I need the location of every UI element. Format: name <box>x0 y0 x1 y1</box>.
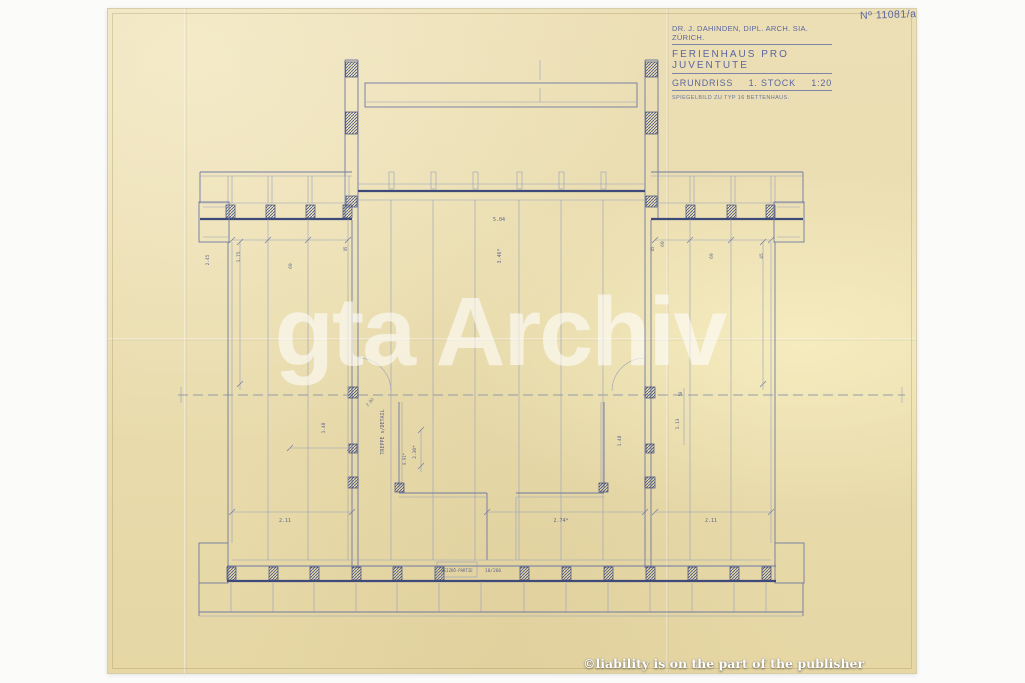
dim-label: 1.48 <box>617 435 623 446</box>
project-title: FERIENHAUS PRO JUVENTUTE <box>672 49 832 74</box>
dimension-lines <box>229 237 774 515</box>
dim-label: 2.74* <box>553 518 568 524</box>
dim-label: TREPPE s/DETAIL <box>380 409 386 454</box>
dim-label: 85 <box>650 246 655 251</box>
dim-label: 58 <box>678 391 683 396</box>
floor-label: 1. STOCK <box>749 78 796 88</box>
dim-label: 1.48 <box>321 422 327 433</box>
dim-label: 69 <box>709 253 715 259</box>
dim-label: 45 <box>759 253 765 259</box>
dim-label: 18/266 <box>485 568 502 574</box>
stair-enclosures <box>395 402 608 560</box>
floor-plan-drawing: 5.043.46*2.451.756995856969452.02581.48T… <box>0 0 1025 683</box>
drawing-type: GRUNDRISS <box>672 78 733 88</box>
drawing-title-row: GRUNDRISS 1. STOCK 1:20 <box>672 78 832 91</box>
mirror-note: SPIEGELBILD ZU TYP 16 BETTENHAUS. <box>672 95 832 101</box>
title-block: DR. J. DAHINDEN, DIPL. ARCH. SIA. ZÜRICH… <box>672 24 832 101</box>
dim-label: 2.11 <box>705 518 717 524</box>
scale-label: 1:20 <box>811 78 832 88</box>
scanned-page-background: 5.043.46*2.451.756995856969452.02581.48T… <box>0 0 1025 683</box>
dim-label: HEIZKÖ-PARTIE <box>441 568 473 573</box>
central-body <box>348 60 655 568</box>
dim-label: 2.45 <box>205 254 211 265</box>
dimension-labels: 5.043.46*2.451.756995856969452.02581.48T… <box>205 217 765 574</box>
architect-line: DR. J. DAHINDEN, DIPL. ARCH. SIA. ZÜRICH… <box>672 24 832 45</box>
top-bay <box>345 60 658 220</box>
dim-label: 1.13 <box>675 418 681 429</box>
drawing-number: Nº 11081/a <box>860 8 917 22</box>
dim-label: 95 <box>343 246 348 251</box>
left-wing <box>199 172 352 583</box>
dim-label: 69 <box>660 241 666 247</box>
dim-label: 1.75 <box>236 251 242 262</box>
dim-label: 0.91* <box>402 452 407 465</box>
center-axis-line <box>178 60 905 403</box>
dim-label: 3.46* <box>497 248 503 263</box>
dim-label: 2.11 <box>279 518 291 524</box>
right-wing <box>651 172 804 583</box>
dim-label: 5.04 <box>493 217 505 223</box>
dim-label: 2.30* <box>412 445 418 459</box>
dim-label: 69 <box>288 263 294 269</box>
dim-label: 2.02 <box>365 396 375 407</box>
